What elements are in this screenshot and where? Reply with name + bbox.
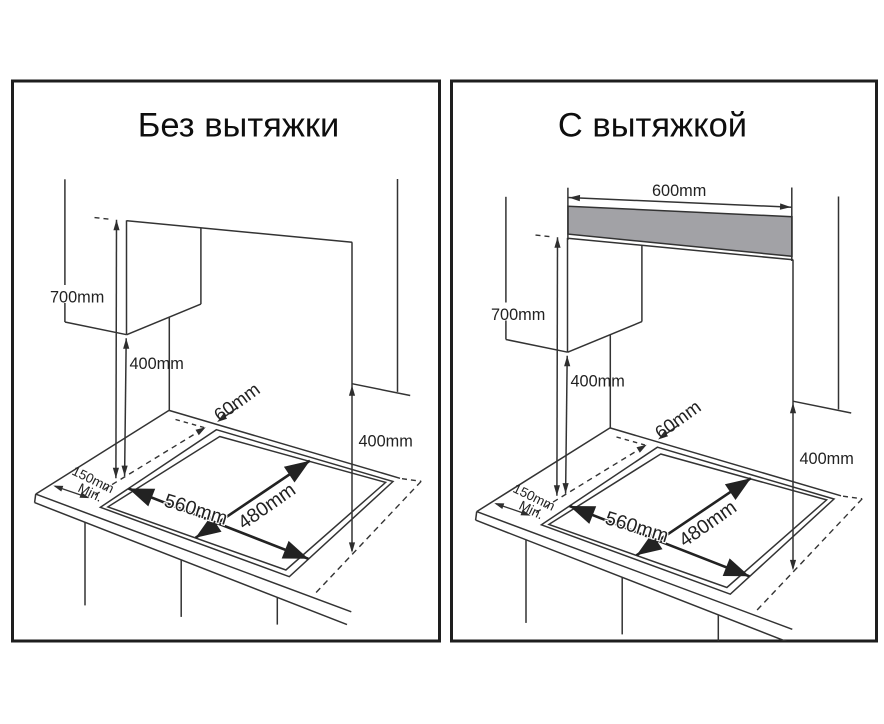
svg-text:700mm: 700mm	[50, 289, 104, 307]
svg-text:700mm: 700mm	[491, 306, 545, 324]
svg-text:Без вытяжки: Без вытяжки	[138, 107, 340, 145]
svg-text:400mm: 400mm	[571, 373, 625, 391]
svg-text:400mm: 400mm	[359, 433, 413, 451]
svg-text:400mm: 400mm	[800, 450, 854, 468]
svg-text:С вытяжкой: С вытяжкой	[558, 107, 747, 145]
svg-text:600mm: 600mm	[652, 182, 706, 200]
svg-text:400mm: 400mm	[130, 355, 184, 373]
